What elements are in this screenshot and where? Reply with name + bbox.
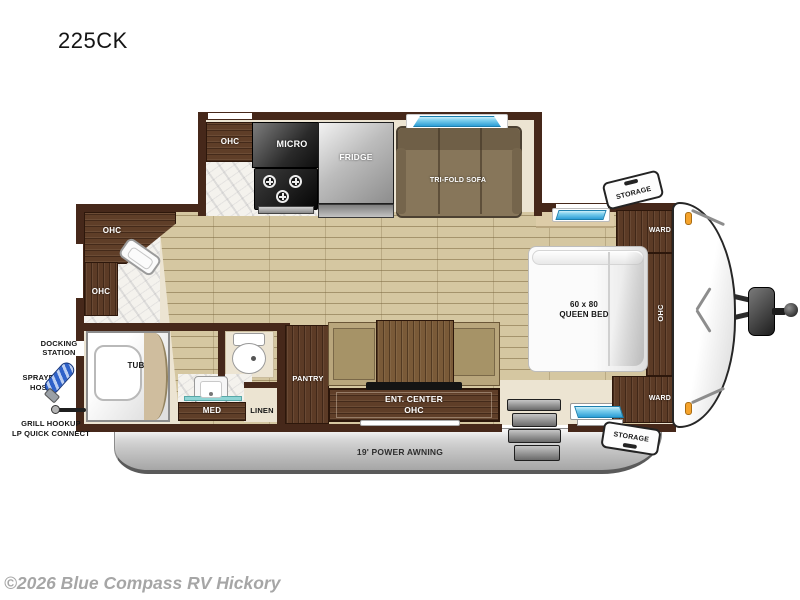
entry-step	[514, 445, 560, 461]
corner-ohc-label: OHC	[88, 224, 136, 238]
rv-floorplan-page: 225CK 19' POWER AWNING STORAGE STORAGE D…	[0, 0, 800, 600]
pantry-label: PANTRY	[284, 372, 332, 386]
entry-threshold	[360, 420, 460, 426]
side-ohc-label: OHC	[80, 285, 122, 299]
refrigerator-label: FRIDGE	[318, 150, 394, 164]
burner-icon	[276, 190, 289, 203]
wardrobe-bottom-label: WARD	[612, 392, 674, 406]
page-title: 225CK	[58, 30, 128, 52]
dealer-watermark: ©2026 Blue Compass RV Hickory	[4, 573, 280, 594]
window-slit-slideout	[208, 113, 252, 119]
tub	[94, 345, 142, 401]
queen-bed-label: 60 x 80 QUEEN BED	[528, 296, 640, 324]
medicine-cabinet-label: MED	[178, 404, 246, 418]
docking-station-label: DOCKING STATION	[26, 337, 92, 359]
slideout-wall-right	[534, 112, 542, 216]
bathroom-wall-toilet-left	[218, 331, 225, 378]
sofa-window	[413, 116, 501, 127]
tub-label: TUB	[112, 359, 160, 373]
wardrobe-top-label: WARD	[616, 224, 674, 238]
bedside-ohc-label: OHC	[654, 292, 668, 334]
sofa-seam	[438, 128, 440, 214]
ent-center-panel-right	[453, 328, 495, 376]
tv	[366, 382, 462, 390]
sofa-seam	[480, 128, 482, 214]
linen-closet-label: LINEN	[240, 404, 284, 418]
toilet-bowl	[232, 343, 266, 374]
propane-cover	[748, 287, 775, 336]
grill-hookup-rod-icon	[56, 408, 86, 412]
refrigerator-lower-drawer	[318, 204, 394, 218]
entry-step	[512, 413, 557, 427]
entry-step	[508, 429, 561, 443]
grill-hookup-connector-icon	[51, 405, 60, 414]
marker-light-top	[685, 212, 692, 225]
burner-icon	[263, 175, 276, 188]
kitchen-ohc-label: OHC	[206, 135, 254, 149]
linen-wall-top	[244, 382, 282, 388]
awning-label: 19' POWER AWNING	[310, 446, 490, 459]
marker-light-bottom	[685, 402, 692, 415]
toilet-flush-dot	[251, 356, 256, 361]
slideout-wall-left	[198, 112, 206, 216]
front-cap	[672, 202, 736, 428]
sofa-backrest	[398, 128, 520, 150]
cooktop-front-trim	[258, 206, 314, 214]
ent-center-tv-panel	[376, 320, 454, 386]
wall-top-left	[76, 204, 206, 212]
cooktop	[254, 168, 318, 210]
ent-center-label: ENT. CENTER OHC	[336, 391, 492, 418]
wall-left	[76, 204, 84, 432]
hitch-ball	[784, 303, 798, 317]
burner-icon	[289, 175, 302, 188]
grill-hookup-label: GRILL HOOKUP LP QUICK CONNECT	[3, 417, 99, 440]
trifold-sofa-label: TRI-FOLD SOFA	[398, 175, 518, 187]
entry-door-window	[574, 406, 624, 418]
entry-step	[507, 399, 561, 411]
vanity-drain-dot	[209, 392, 213, 396]
bathroom-wall-top	[84, 323, 290, 331]
bedroom-window	[555, 210, 606, 220]
ent-center-panel-left	[333, 328, 375, 380]
